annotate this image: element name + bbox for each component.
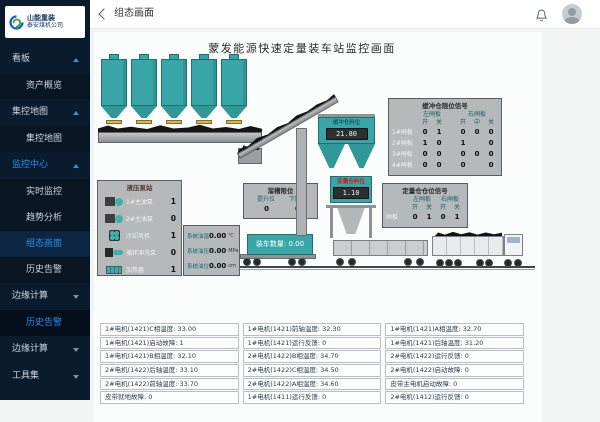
silo-2 bbox=[131, 54, 157, 124]
table-cell: 1#电机(1421)运行反馈: 0 bbox=[243, 337, 382, 350]
sidebar-item-asset-overview[interactable]: 资产概览 bbox=[0, 73, 90, 99]
sidebar-item-trend-analysis[interactable]: 趋势分析 bbox=[0, 205, 90, 231]
silo-4 bbox=[191, 54, 217, 124]
horizontal-conveyor bbox=[98, 132, 262, 143]
buffer-limit-panel: 缓冲仓限位信号 左闸板右闸板 开关开中关 1#闸板01000 2#闸板1010 … bbox=[388, 98, 502, 176]
fan-icon bbox=[109, 230, 120, 241]
heater-row: 加热器1 bbox=[98, 261, 181, 278]
wheel-icon bbox=[348, 258, 356, 266]
weigh-bin: 定量仓料位 1.10 bbox=[330, 176, 372, 203]
bell-icon[interactable] bbox=[535, 7, 548, 26]
sidebar-item-control-map[interactable]: 集控地图 bbox=[0, 126, 90, 152]
load-count-display: 装车数量: 0.00 bbox=[247, 234, 313, 255]
heater-icon bbox=[106, 266, 122, 274]
gate-row: 2#闸板1010 bbox=[389, 138, 501, 149]
oil-system-panel: 系统油温0.00℃ 系统油压0.00MPa 系统油位0.00cm bbox=[183, 225, 240, 276]
sidebar-item-edge-computing-2[interactable]: 边缘计算 bbox=[0, 336, 90, 363]
gate-row: 闸板0101 bbox=[383, 212, 467, 223]
logo-text-line2: 泰安煤机公司 bbox=[27, 22, 63, 30]
table-cell: 1#电机(1421)B相温度: 32.10 bbox=[100, 350, 239, 363]
scada-canvas: 蒙发能源快速定量装车站监控画面 缓冲仓料位 21.80 定量仓料位 1.10 bbox=[90, 28, 600, 400]
silo-5 bbox=[221, 54, 247, 124]
table-cell: 2#电机(1412)运行反馈: 0 bbox=[385, 391, 524, 404]
logo-text-line1: 山能重装 bbox=[27, 14, 63, 22]
wheel-icon bbox=[504, 259, 512, 267]
feeder-icon bbox=[166, 120, 182, 124]
buffer-bin-level-display: 21.80 bbox=[326, 128, 368, 140]
pump-icon bbox=[105, 214, 123, 223]
sidebar-item-scada-screen-active[interactable]: 组态画面 bbox=[0, 231, 90, 257]
feeder-icon bbox=[136, 120, 152, 124]
wheel-icon bbox=[485, 259, 493, 267]
buffer-bin: 缓冲仓料位 21.80 bbox=[318, 114, 375, 168]
table-cell: 2#电机(1422)C相温度: 34.50 bbox=[243, 364, 382, 377]
pump-row: 2#主油泵0 bbox=[98, 210, 181, 227]
table-cell: 1#电机(1421)后轴温度: 31.20 bbox=[385, 337, 524, 350]
wheel-icon bbox=[298, 258, 306, 266]
silo-3 bbox=[161, 54, 187, 124]
app-window: 山能重装 泰安煤机公司 看板 资产概览 集控地图 集控地图 监控中心 实时监控 … bbox=[0, 0, 600, 400]
wheel-icon bbox=[514, 259, 522, 267]
chevron-down-icon bbox=[73, 295, 79, 299]
table-cell: 1#电机(1421)C相温度: 33.00 bbox=[100, 323, 239, 336]
gate-row: 4#闸板0000 bbox=[389, 160, 501, 171]
table-cell: 1#电机(1421)启动故障: 1 bbox=[100, 337, 239, 350]
table-cell: 1#电机(1421)前轴温度: 32.30 bbox=[243, 323, 382, 336]
sidebar-item-dashboard[interactable]: 看板 bbox=[0, 46, 90, 73]
gate-row: 1#闸板01000 bbox=[389, 127, 501, 138]
weigh-bin-label: 定量仓料位 bbox=[331, 179, 371, 186]
gate-row: 3#闸板00000 bbox=[389, 149, 501, 160]
wheel-icon bbox=[445, 259, 453, 267]
weigh-bin-display: 1.10 bbox=[333, 187, 369, 199]
user-avatar[interactable] bbox=[562, 4, 582, 24]
truck-cab bbox=[504, 234, 523, 256]
table-cell: 2#电机(1422)运行反馈: 0 bbox=[385, 350, 524, 363]
chevron-up-icon bbox=[73, 111, 79, 115]
pump-row: 1#主油泵1 bbox=[98, 193, 181, 210]
table-cell: 2#电机(1422)后轴温度: 33.10 bbox=[100, 364, 239, 377]
page-title: 组态画面 bbox=[114, 0, 154, 28]
table-cell: 1#电机(1411)运行反馈: 0 bbox=[243, 391, 382, 404]
support-column bbox=[296, 128, 307, 236]
wheel-icon bbox=[404, 258, 412, 266]
wheel-icon bbox=[336, 258, 344, 266]
wheel-icon bbox=[436, 259, 444, 267]
table-cell: 2#电机(1422)启动故障: 0 bbox=[385, 364, 524, 377]
back-chevron-icon[interactable] bbox=[98, 8, 109, 19]
motor-status-table: 1#电机(1421)C相温度: 33.00 1#电机(1421)启动故障: 1 … bbox=[100, 323, 524, 404]
weigh-limit-panel: 定量仓仓位信号 左闸板右闸板 开关开关 闸板0101 bbox=[382, 183, 468, 228]
chevron-up-icon bbox=[73, 58, 79, 62]
feeder-icon bbox=[196, 120, 212, 124]
wheel-icon bbox=[253, 258, 261, 266]
topbar: 组态画面 bbox=[90, 0, 600, 29]
table-cell: 1#电机(1421)A相温度: 32.70 bbox=[385, 323, 524, 336]
sidebar-item-history-alarm[interactable]: 历史告警 bbox=[0, 257, 90, 283]
rail-track-shadow bbox=[215, 269, 535, 270]
hopper-car bbox=[333, 240, 428, 256]
support-leg bbox=[369, 208, 372, 238]
table-cell: 2#电机(1422)B相温度: 34.70 bbox=[243, 350, 382, 363]
table-cell: 皮带就地故障: 0 bbox=[100, 391, 239, 404]
chevron-up-icon bbox=[73, 164, 79, 168]
sidebar-item-monitor-center[interactable]: 监控中心 bbox=[0, 152, 90, 179]
wheel-icon bbox=[243, 258, 251, 266]
wash-pump-row: 循环冲洗泵0 bbox=[98, 244, 181, 261]
truck-trailer bbox=[432, 236, 504, 256]
wash-pump-icon bbox=[105, 248, 123, 257]
feeder-icon bbox=[226, 120, 242, 124]
table-cell: 2#电机(1422)前轴温度: 33.70 bbox=[100, 378, 239, 391]
company-logo: 山能重装 泰安煤机公司 bbox=[5, 6, 85, 38]
table-cell: 2#电机(1422)A相温度: 34.60 bbox=[243, 378, 382, 391]
wheel-icon bbox=[454, 259, 462, 267]
silo-1 bbox=[101, 54, 127, 124]
sidebar-item-control-map-group[interactable]: 集控地图 bbox=[0, 99, 90, 126]
fan-row: 冷却风机1 bbox=[98, 227, 181, 244]
buffer-bin-label: 缓冲仓料位 bbox=[319, 120, 374, 127]
sidebar-item-edge-computing[interactable]: 边缘计算 bbox=[0, 283, 90, 310]
pump-icon bbox=[105, 197, 123, 206]
sidebar-item-history-alarm-2[interactable]: 历史告警 bbox=[0, 310, 90, 336]
feeder-icon bbox=[106, 120, 122, 124]
support-leg bbox=[330, 208, 333, 238]
chevron-down-icon bbox=[73, 375, 79, 379]
sidebar-item-realtime-monitor[interactable]: 实时监控 bbox=[0, 179, 90, 205]
chevron-down-icon bbox=[73, 348, 79, 352]
sidebar-item-toolset[interactable]: 工具集 bbox=[0, 363, 90, 390]
pump-station-panel: 液压泵站 1#主油泵1 2#主油泵0 冷却风机1 循环冲洗泵0 加热器1 bbox=[97, 180, 182, 276]
wheel-icon bbox=[476, 259, 484, 267]
table-cell: 皮带主电机启动故障: 0 bbox=[385, 378, 524, 391]
wheel-icon bbox=[416, 258, 424, 266]
logo-swirl-icon bbox=[9, 15, 24, 30]
wheel-icon bbox=[288, 258, 296, 266]
sidebar: 山能重装 泰安煤机公司 看板 资产概览 集控地图 集控地图 监控中心 实时监控 … bbox=[0, 0, 90, 400]
